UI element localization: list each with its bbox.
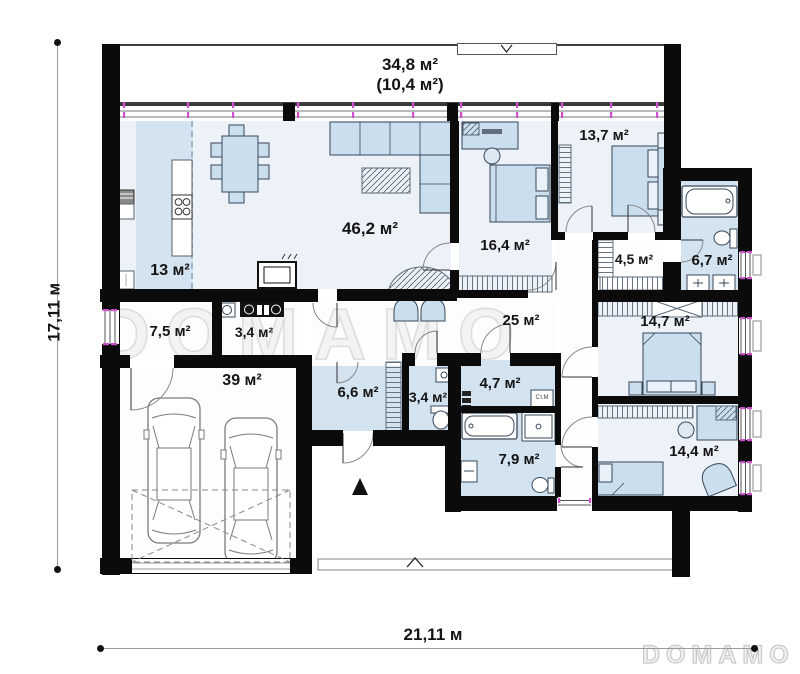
room-label-bedroom2: 13,7 м² [566,128,642,145]
room-label-bath2: 7,9 м² [488,452,550,469]
dimension-dot [54,39,61,46]
washer-label: Ст.М [531,395,553,401]
room-label-bedroom4: 14,4 м² [654,444,734,461]
dimension-dot [54,566,61,573]
window [739,317,761,355]
dimension-dot [97,645,104,652]
windows-layer [0,0,800,674]
dimension-dot [751,645,758,652]
watermark-corner: DOMAMO [642,641,795,670]
dimension-label-width: 21,11 м [393,626,473,645]
room-label-wc: 3,4 м² [402,390,454,405]
room-label-closet: 4,5 м² [606,252,662,267]
terrace-area-sublabel: (10,4 м²) [325,76,495,95]
room-label-bath1: 6,7 м² [684,253,740,270]
driveway-dashed [132,490,290,562]
room-label-bedroom1: 16,4 м² [466,238,544,255]
room-label-living: 46,2 м² [326,220,414,239]
room-label-boiler: 3,4 м² [224,325,284,340]
dimension-line-horizontal [100,648,756,649]
window [101,309,119,345]
window [558,497,591,510]
window [739,461,761,495]
room-label-garage: 39 м² [208,372,276,390]
room-label-utility: 7,5 м² [138,324,202,341]
room-label-laundry: 4,7 м² [470,376,530,393]
garage-door-opening [132,490,290,573]
dimension-label-height: 17,11 м [46,252,65,372]
window [739,251,761,279]
room-label-bedroom3: 14,7 м² [626,314,704,331]
window [739,407,761,441]
room-label-corridor: 25 м² [490,313,552,330]
room-label-kitchen: 13 м² [135,262,205,280]
room-label-hall: 6,6 м² [328,385,388,402]
floor-plan: 17,11 м 21,11 м DOMAMO DOMAMO [0,0,800,674]
terrace-area-label: 34,8 м² [325,56,495,75]
